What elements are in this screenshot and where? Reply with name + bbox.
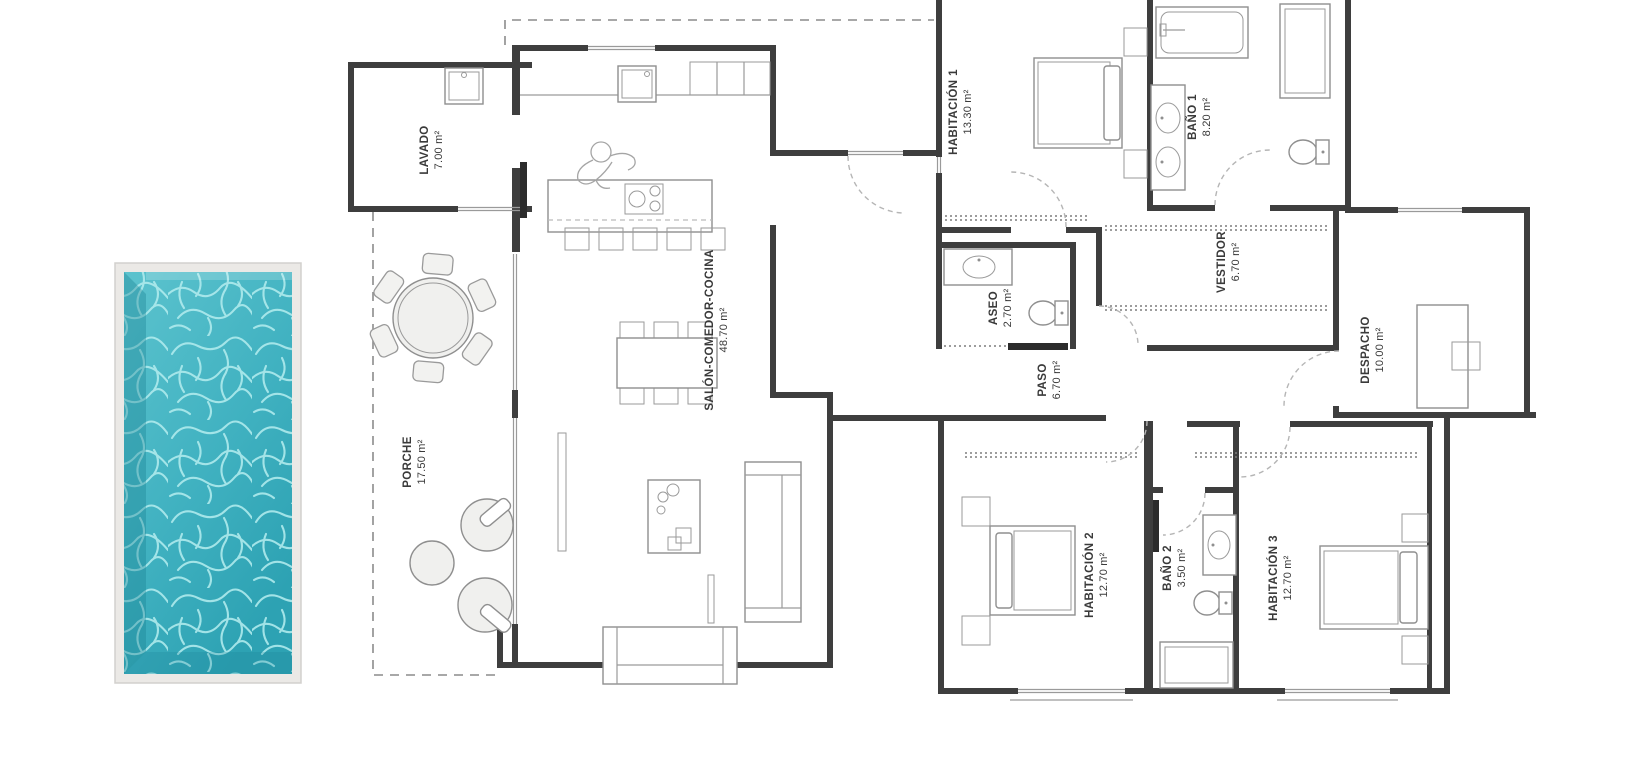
room-name-salon: SALÓN-COMEDOR-COCINA [703, 249, 716, 410]
room-area-aseo: 2.70 m² [1002, 289, 1014, 328]
room-name-habitacion2: HABITACIÓN 2 [1083, 532, 1096, 618]
bed-2 [962, 497, 1075, 645]
bedroom2-door-arc [1106, 421, 1147, 462]
bed-3 [1320, 514, 1428, 664]
room-name-vestidor: VESTIDOR [1216, 231, 1228, 293]
front-door-arc [848, 156, 905, 213]
room-area-lavado: 7.00 m² [433, 131, 445, 170]
room-area-habitacion3: 12.70 m² [1282, 555, 1294, 600]
bath2-sink [1203, 515, 1236, 575]
room-area-vestidor: 6.70 m² [1230, 243, 1242, 282]
kitchen-island [548, 180, 712, 232]
room-label-lavado: LAVADO 7.00 m² [419, 125, 445, 174]
porch-side-table [410, 541, 454, 585]
bedroom1-door-arc [1011, 172, 1066, 227]
floor-plan-drawing: LAVADO 7.00 m² SALÓN-COMEDOR-COCINA 48.7… [0, 0, 1638, 773]
aseo-sink [944, 249, 1012, 285]
room-name-despacho: DESPACHO [1360, 316, 1372, 384]
porch-round-table [369, 253, 498, 383]
bed-1 [1034, 28, 1147, 178]
room-label-paso: PASO 6.70 m² [1037, 361, 1063, 400]
swimming-pool [115, 263, 301, 683]
kitchen-counter [520, 62, 770, 102]
room-name-habitacion3: HABITACIÓN 3 [1267, 535, 1280, 621]
room-name-aseo: ASEO [988, 291, 1000, 325]
room-name-bano2: BAÑO 2 [1161, 545, 1174, 591]
room-label-aseo: ASEO 2.70 m² [988, 289, 1014, 328]
roof-overhang-dashed-line [505, 20, 934, 45]
room-area-salon: 48.70 m² [718, 307, 730, 352]
room-label-habitacion1: HABITACIÓN 1 13.30 m² [947, 69, 974, 155]
room-name-lavado: LAVADO [419, 125, 431, 174]
toilet-bath1 [1289, 140, 1329, 164]
room-name-porche: PORCHE [402, 436, 414, 488]
sofa-vertical [745, 462, 801, 622]
despacho-door-arc [1284, 351, 1339, 406]
room-area-bano1: 8.20 m² [1201, 98, 1213, 137]
pool-shadow-bottom [124, 652, 292, 674]
vestidor-door-arc [1099, 306, 1138, 345]
room-name-bano1: BAÑO 1 [1186, 94, 1199, 140]
kitchen-pocket-door [520, 162, 527, 218]
room-area-habitacion2: 12.70 m² [1098, 552, 1110, 597]
bedroom3-door-arc [1240, 427, 1290, 477]
porch-lounge-chairs [410, 496, 513, 634]
toilet-bath2 [1194, 591, 1232, 615]
room-label-bano1: BAÑO 1 8.20 m² [1186, 94, 1213, 140]
room-label-vestidor: VESTIDOR 6.70 m² [1216, 231, 1242, 293]
bath2-door-arc [1163, 493, 1205, 535]
room-label-despacho: DESPACHO 10.00 m² [1360, 316, 1386, 384]
floor-plan-canvas: LAVADO 7.00 m² SALÓN-COMEDOR-COCINA 48.7… [0, 0, 1638, 773]
room-label-habitacion3: HABITACIÓN 3 12.70 m² [1267, 535, 1294, 621]
toilet-aseo [1029, 301, 1068, 325]
washing-machine [445, 68, 483, 104]
room-label-porche: PORCHE 17.50 m² [402, 436, 428, 488]
double-sink-counter [1151, 85, 1185, 190]
sofa-horizontal [603, 627, 737, 684]
room-area-paso: 6.70 m² [1051, 361, 1063, 400]
dining-table [617, 322, 717, 404]
bath2-pocket-door [1153, 500, 1159, 552]
desk [1417, 305, 1480, 408]
shower [1280, 4, 1330, 98]
room-area-porche: 17.50 m² [416, 439, 428, 484]
room-name-habitacion1: HABITACIÓN 1 [947, 69, 960, 155]
room-name-paso: PASO [1037, 363, 1049, 396]
bathtub [1156, 7, 1248, 58]
room-area-bano2: 3.50 m² [1176, 549, 1188, 588]
coffee-table [648, 480, 700, 553]
shower-tray-bath2 [1160, 642, 1233, 688]
bath1-door-arc [1215, 150, 1270, 205]
pool-shadow-left [124, 272, 146, 674]
room-label-bano2: BAÑO 2 3.50 m² [1161, 545, 1188, 591]
room-label-habitacion2: HABITACIÓN 2 12.70 m² [1083, 532, 1110, 618]
aseo-sliding-door [1008, 343, 1068, 350]
room-area-despacho: 10.00 m² [1374, 327, 1386, 372]
room-area-habitacion1: 13.30 m² [962, 89, 974, 134]
